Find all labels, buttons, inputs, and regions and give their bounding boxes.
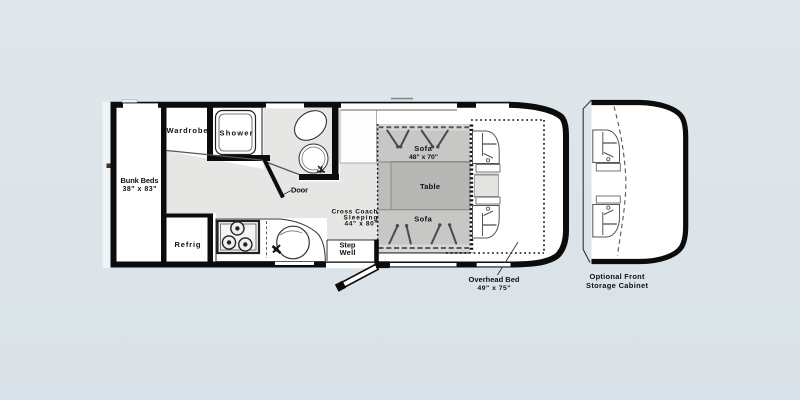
svg-text:Door: Door bbox=[291, 186, 308, 195]
svg-text:Overhead Bed: Overhead Bed bbox=[469, 275, 520, 284]
svg-text:Wardrobe: Wardrobe bbox=[167, 126, 208, 135]
svg-text:48" x 70": 48" x 70" bbox=[409, 154, 438, 161]
svg-text:Optional Front: Optional Front bbox=[590, 272, 646, 281]
svg-text:Sofa: Sofa bbox=[414, 214, 432, 223]
svg-text:Sofa: Sofa bbox=[414, 144, 432, 153]
svg-text:Table: Table bbox=[420, 182, 440, 191]
svg-text:44" x 80": 44" x 80" bbox=[345, 220, 378, 227]
svg-text:Refrig: Refrig bbox=[175, 240, 201, 249]
svg-text:Storage Cabinet: Storage Cabinet bbox=[586, 281, 649, 290]
svg-text:Shower: Shower bbox=[220, 129, 253, 138]
svg-text:Well: Well bbox=[340, 248, 356, 257]
svg-text:49" x 75": 49" x 75" bbox=[478, 285, 511, 292]
svg-text:Bunk Beds: Bunk Beds bbox=[121, 176, 159, 185]
svg-text:38" x 83": 38" x 83" bbox=[123, 186, 157, 193]
